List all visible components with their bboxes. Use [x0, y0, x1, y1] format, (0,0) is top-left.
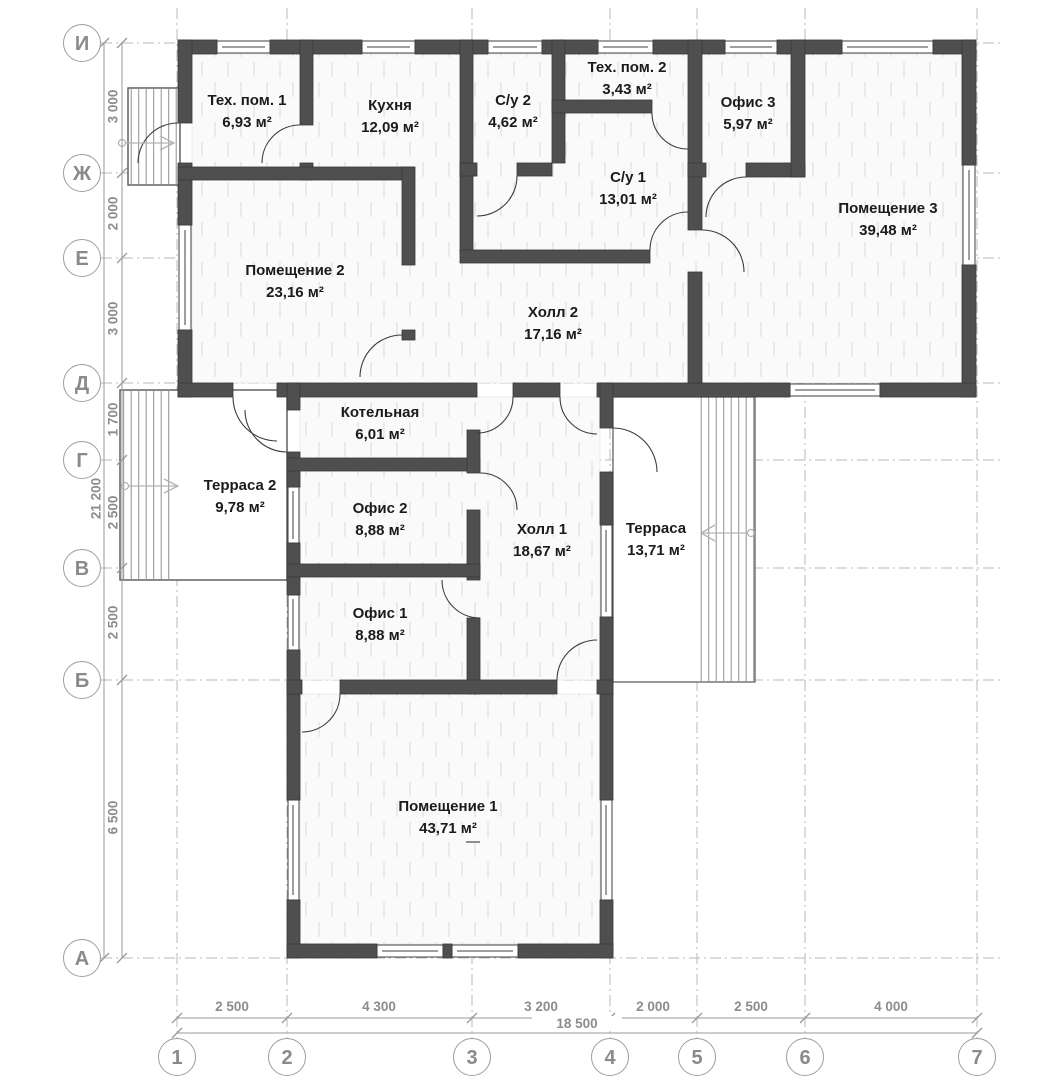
dimension-label: 2 000 — [608, 999, 698, 1014]
room-name: Терраса — [626, 518, 686, 540]
dimension-label: 3 200 — [496, 999, 586, 1014]
dimension-total-label: 18 500 — [532, 1016, 622, 1031]
room-name: С/у 1 — [599, 167, 657, 189]
dimension-label: 1 700 — [106, 385, 121, 455]
room-name: Офис 1 — [353, 603, 408, 625]
axis-bubble-col: 5 — [678, 1038, 716, 1076]
room-name: Холл 2 — [524, 302, 582, 324]
dimension-label: 2 500 — [106, 478, 121, 548]
dimension-label: 4 000 — [846, 999, 936, 1014]
axis-bubble-col: 3 — [453, 1038, 491, 1076]
dimension-total-label: 21 200 — [89, 464, 104, 534]
room-name: Кухня — [361, 95, 419, 117]
dimension-label: 2 500 — [106, 588, 121, 658]
axis-bubble-col: 2 — [268, 1038, 306, 1076]
room-name: Тех. пом. 1 — [207, 90, 286, 112]
room-label: Котельная6,01 м² — [341, 402, 420, 446]
dimension-label: 3 000 — [106, 284, 121, 354]
room-name: Офис 2 — [353, 498, 408, 520]
axis-bubble-col: 7 — [958, 1038, 996, 1076]
room-area: 18,67 м² — [513, 541, 571, 563]
room-label: Помещение 143,71 м² — [398, 796, 497, 840]
room-area: 8,88 м² — [353, 520, 408, 542]
room-label: Тех. пом. 23,43 м² — [587, 57, 666, 101]
room-label: Холл 217,16 м² — [524, 302, 582, 346]
room-label: Помещение 339,48 м² — [838, 198, 937, 242]
axis-bubble-row: В — [63, 549, 101, 587]
room-area: 8,88 м² — [353, 625, 408, 647]
room-area: 5,97 м² — [721, 114, 776, 136]
room-name: Тех. пом. 2 — [587, 57, 666, 79]
axis-bubble-col: 4 — [591, 1038, 629, 1076]
axis-bubble-row: Б — [63, 661, 101, 699]
room-area: 43,71 м² — [398, 818, 497, 840]
room-area: 23,16 м² — [245, 282, 344, 304]
room-area: 9,78 м² — [204, 497, 277, 519]
axis-bubble-col: 6 — [786, 1038, 824, 1076]
room-area: 12,09 м² — [361, 117, 419, 139]
axis-bubble-row: А — [63, 939, 101, 977]
dimension-label: 2 500 — [706, 999, 796, 1014]
room-label: Помещение 223,16 м² — [245, 260, 344, 304]
dimension-label: 4 300 — [334, 999, 424, 1014]
room-label: Терраса 29,78 м² — [204, 475, 277, 519]
room-area: 13,01 м² — [599, 189, 657, 211]
room-area: 13,71 м² — [626, 540, 686, 562]
axis-bubble-row: Д — [63, 364, 101, 402]
room-name: Помещение 3 — [838, 198, 937, 220]
floor-plan: Тех. пом. 16,93 м² Кухня12,09 м² С/у 24,… — [0, 0, 1058, 1080]
dimension-label: 6 500 — [106, 783, 121, 853]
dimension-label: 2 500 — [187, 999, 277, 1014]
room-label: Тех. пом. 16,93 м² — [207, 90, 286, 134]
dimension-label: 3 000 — [106, 72, 121, 142]
room-area: 6,93 м² — [207, 112, 286, 134]
room-name: Холл 1 — [513, 519, 571, 541]
room-label: Офис 18,88 м² — [353, 603, 408, 647]
room-name: С/у 2 — [488, 90, 537, 112]
room-area: 4,62 м² — [488, 112, 537, 134]
room-name: Помещение 1 — [398, 796, 497, 818]
axis-bubble-col: 1 — [158, 1038, 196, 1076]
dimension-label: 2 000 — [106, 179, 121, 249]
room-name: Офис 3 — [721, 92, 776, 114]
room-label: Терраса13,71 м² — [626, 518, 686, 562]
room-label: Офис 28,88 м² — [353, 498, 408, 542]
axis-bubble-row: И — [63, 24, 101, 62]
room-area: 6,01 м² — [341, 424, 420, 446]
room-name: Терраса 2 — [204, 475, 277, 497]
floors — [192, 54, 962, 944]
room-name: Котельная — [341, 402, 420, 424]
room-area: 39,48 м² — [838, 220, 937, 242]
room-label: Кухня12,09 м² — [361, 95, 419, 139]
room-name: Помещение 2 — [245, 260, 344, 282]
room-label: С/у 24,62 м² — [488, 90, 537, 134]
axis-bubble-row: Е — [63, 239, 101, 277]
room-area: 17,16 м² — [524, 324, 582, 346]
room-area: 3,43 м² — [587, 79, 666, 101]
room-label: Холл 118,67 м² — [513, 519, 571, 563]
room-label: Офис 35,97 м² — [721, 92, 776, 136]
room-label: С/у 113,01 м² — [599, 167, 657, 211]
axis-bubble-row: Ж — [63, 154, 101, 192]
